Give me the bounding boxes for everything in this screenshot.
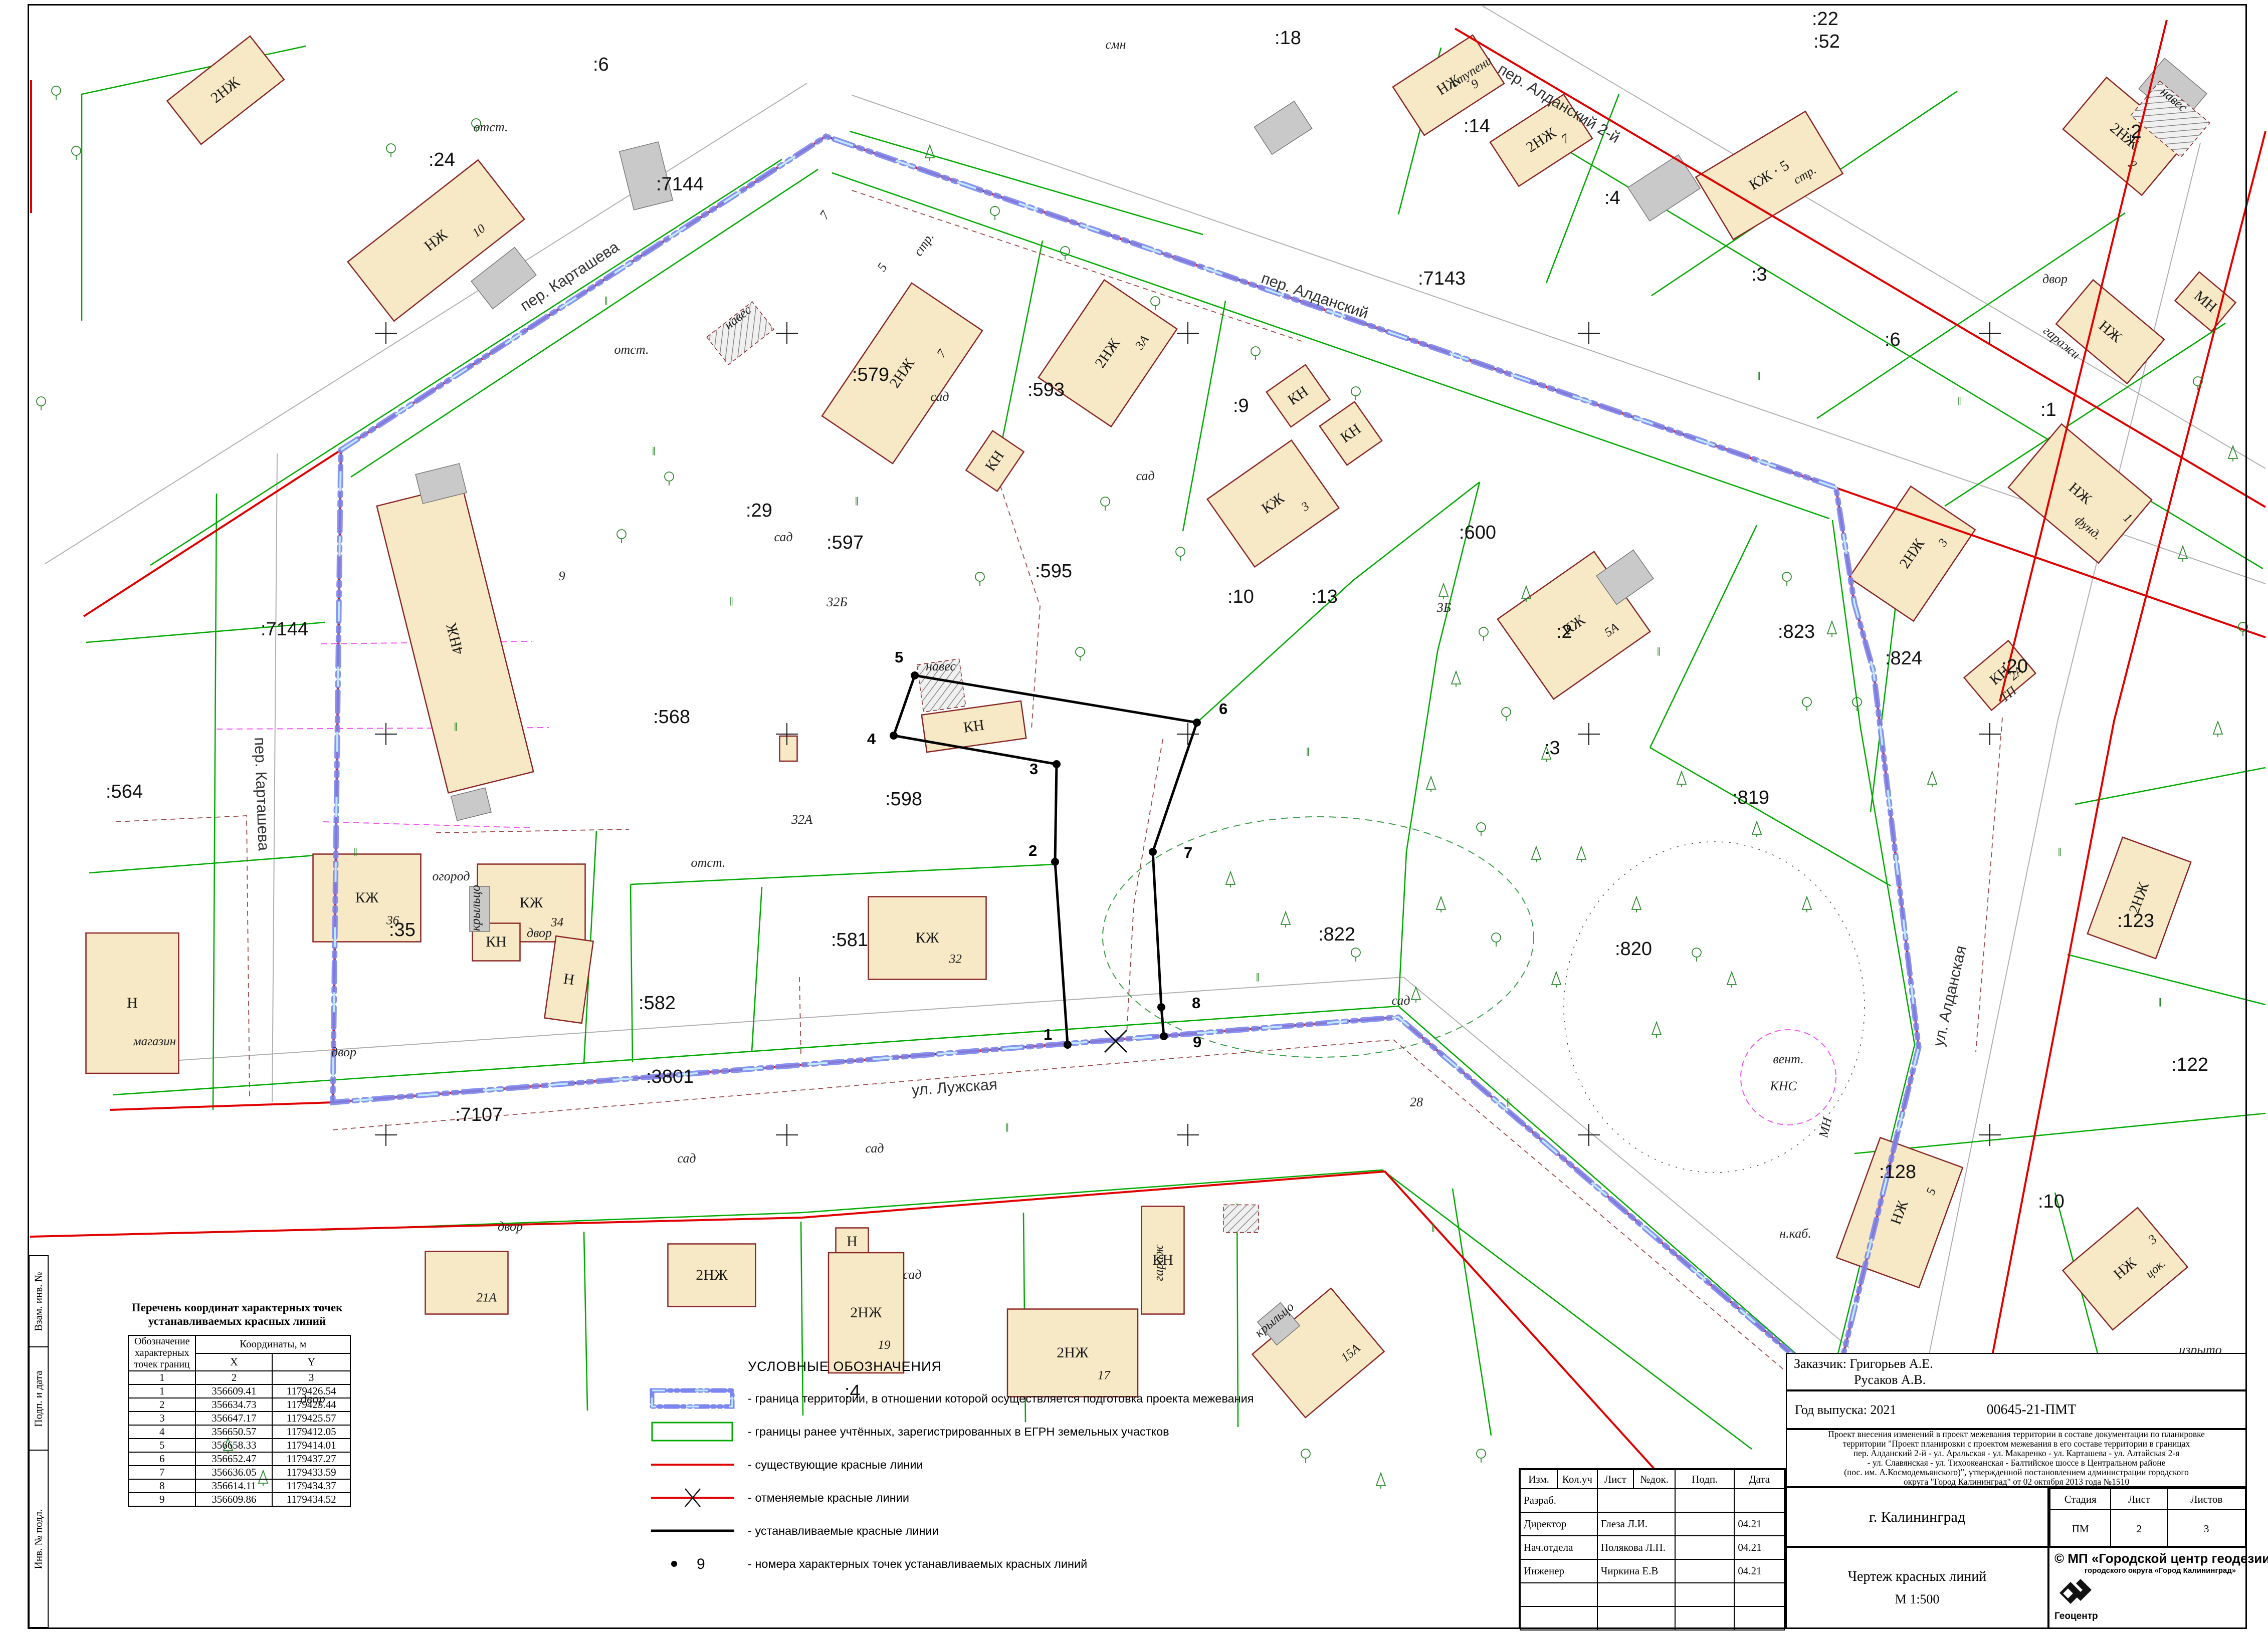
building-number: 34 [550, 916, 563, 929]
building-number: 21А [476, 1291, 497, 1305]
grid-cross [375, 322, 397, 344]
building-number: магазин [133, 1035, 176, 1048]
parcel-number-label: :52 [1813, 31, 1840, 52]
coord-row: 2356634.731179425.44 [128, 1398, 350, 1412]
legend-title: УСЛОВНЫЕ ОБОЗНАЧЕНИЯ [748, 1359, 1254, 1374]
building-number: 19 [878, 1338, 891, 1352]
legend-item-text: - границы ранее учтённых, зарегистрирова… [748, 1425, 1169, 1439]
sig-row [1520, 1606, 1784, 1630]
building: 2НЖ [167, 36, 284, 144]
building-label: КЖ [355, 889, 379, 906]
sig-cell [1734, 1489, 1784, 1512]
sig-cell: Полякова Л.П. [1597, 1536, 1676, 1559]
coord-cell: 356650.57 [195, 1425, 272, 1439]
coord-cell: 356614.11 [195, 1479, 272, 1493]
parcel-number-label: :600 [1459, 522, 1496, 543]
sig-cell [1675, 1583, 1734, 1606]
tree-icon [1477, 823, 1486, 836]
grass-mark: ∥ [1957, 396, 1962, 405]
legend-item: - граница территории, в отношении которо… [649, 1387, 1254, 1410]
coord-cell: 1179425.44 [272, 1398, 350, 1412]
legend-item: - отменяемые красные линии [649, 1487, 1254, 1509]
building: НЖ5 [1836, 1137, 1963, 1287]
sig-header-cell: Дата [1734, 1470, 1784, 1489]
conifer-tree-icon [1436, 897, 1446, 912]
conifer-tree-icon [1632, 897, 1641, 912]
sig-header-cell: Изм. [1520, 1470, 1557, 1489]
parcel-number-label: :595 [1035, 561, 1072, 582]
coord-cell: 8 [128, 1479, 195, 1493]
outbuilding-grey [451, 788, 491, 820]
characteristic-point [1064, 1041, 1072, 1049]
tree-icon [1492, 933, 1501, 947]
coord-cell: 5 [128, 1439, 195, 1452]
coord-row: 3356647.171179425.57 [128, 1412, 350, 1425]
parcel-number-label: :123 [2117, 910, 2154, 931]
building: КЖ32 [869, 897, 986, 980]
characteristic-point [890, 732, 898, 740]
map-annotation-label: сад [1136, 469, 1154, 483]
grid-cross [1979, 322, 2001, 344]
building: Нмагазин [86, 933, 179, 1073]
legend: УСЛОВНЫЕ ОБОЗНАЧЕНИЯ - граница территори… [649, 1359, 1254, 1586]
parcel-number-label: :579 [852, 364, 889, 385]
legend-symbol-blackline [649, 1520, 737, 1542]
characteristic-point [1053, 760, 1061, 768]
sig-cell [1675, 1536, 1734, 1559]
grass-mark: ∥ [1757, 371, 1761, 380]
map-annotation-label: двор [527, 925, 552, 940]
conifer-tree-icon [1727, 972, 1736, 988]
drawing-scale: М 1:500 [1848, 1592, 1986, 1607]
legend-item: 9- номера характерных точек устанавливае… [649, 1553, 1254, 1575]
grass-mark: ∥ [652, 446, 656, 455]
side-cell-inv: Инв. № подл. [29, 1450, 49, 1628]
grass-mark: ∥ [1506, 1097, 1511, 1107]
conifer-tree-icon [1802, 897, 1811, 912]
tree-icon [975, 572, 984, 586]
coord-row: 1356609.411179426.54 [128, 1384, 350, 1398]
tree-icon [1692, 948, 1701, 962]
building: 2НЖ [2088, 837, 2191, 959]
map-annotation-label: крыльцо [468, 885, 483, 931]
conifer-tree-icon [1452, 671, 1461, 687]
tree-icon [1351, 948, 1360, 962]
landuse-dashed-line [1976, 718, 2002, 1052]
tree-icon [37, 397, 46, 410]
legend-item: - границы ранее учтённых, зарегистрирова… [649, 1421, 1254, 1443]
coord-cell: 9 [128, 1493, 195, 1506]
road-centerline [1483, 6, 2265, 469]
coord-cell: 1179412.05 [272, 1425, 350, 1439]
parcel-boundary-green [1398, 482, 1480, 1006]
tree-icon [617, 530, 626, 543]
stage-value: ПМ [2050, 1510, 2111, 1548]
conifer-tree-icon [1752, 822, 1761, 837]
legend-symbol-pointnum: 9 [649, 1553, 737, 1575]
characteristic-point [911, 671, 919, 679]
parcel-number-label: :6 [593, 54, 609, 75]
sig-row: ИнженерЧиркина Е.В04.21 [1520, 1559, 1784, 1583]
coordinate-table-block: Перечень координат характерных точекуста… [128, 1301, 351, 1507]
conifer-tree-icon [1281, 912, 1290, 927]
sig-cell: Нач.отдела [1520, 1536, 1597, 1559]
conifer-tree-icon [2213, 722, 2222, 737]
sig-cell: Разраб. [1520, 1489, 1597, 1512]
sig-cell [1520, 1583, 1597, 1606]
building: НЖфунд. [2008, 424, 2152, 563]
point-number: 4 [867, 730, 876, 748]
conifer-tree-icon [1376, 1473, 1385, 1489]
map-annotation-label: 7 [816, 208, 833, 222]
sig-cell [1675, 1559, 1734, 1583]
legend-item-text: - номера характерных точек устанавливаем… [748, 1557, 1087, 1571]
sig-cell [1734, 1606, 1784, 1630]
landuse-dashed-line [1127, 739, 1163, 1033]
sig-cell: Инженер [1520, 1559, 1597, 1583]
grid-cross [1979, 1124, 2001, 1146]
coord-row: 7356636.051179433.59 [128, 1466, 350, 1479]
conifer-tree-icon [1577, 847, 1586, 862]
characteristic-point [1149, 848, 1157, 856]
coord-cell: 356647.17 [195, 1412, 272, 1425]
coord-row: 4356650.571179412.05 [128, 1425, 350, 1439]
coord-row: 5356658.331179414.01 [128, 1439, 350, 1452]
building: 2НЖ19 [829, 1253, 904, 1373]
parcel-number-label: :564 [106, 781, 143, 802]
coord-cell: 1179426.54 [272, 1384, 350, 1398]
conifer-tree-icon [1827, 621, 1836, 637]
legend-item-text: - отменяемые красные линии [748, 1491, 909, 1505]
doc-number: 00645-21-ПМТ [1986, 1402, 2076, 1418]
sig-header-cell: Кол.уч [1557, 1470, 1597, 1489]
sig-cell [1520, 1606, 1597, 1630]
building-label: КН [962, 717, 985, 736]
grass-mark: ∥ [1657, 646, 1661, 656]
building-label: КЖ [520, 894, 543, 911]
parcel-number-label: :6 [1885, 329, 1901, 350]
conifer-tree-icon [1928, 772, 1937, 787]
sig-cell: Директор [1520, 1512, 1597, 1536]
sig-cell: 04.21 [1734, 1512, 1784, 1536]
coord-cell: 1 [128, 1384, 195, 1398]
conifer-tree-icon [925, 145, 934, 161]
map-annotation-label: МН [1816, 1115, 1835, 1139]
grid-cross [1578, 723, 1600, 745]
parcel-number-label: :20 [2001, 656, 2028, 677]
map-annotation-label: вент. [1773, 1052, 1803, 1066]
coord-cell: 356636.05 [195, 1466, 272, 1479]
map-annotation-label: двор [331, 1045, 356, 1059]
legend-item: - устанавливаемые красные линии [649, 1520, 1254, 1542]
parcel-boundary-green [1453, 1189, 1491, 1436]
map-annotation-label: 32Б [826, 595, 847, 609]
parcel-number-label: :122 [2171, 1054, 2208, 1075]
sig-cell [1597, 1606, 1676, 1630]
red-line-existing [110, 1102, 333, 1110]
parcel-number-label: :7144 [261, 619, 308, 640]
map-annotation-label: двор [498, 1219, 523, 1234]
parcel-number-label: :22 [1812, 9, 1838, 30]
building: 15А [1252, 1288, 1384, 1418]
map-annotation-label: н.каб. [1779, 1226, 1811, 1241]
sheet-label: Лист [2111, 1489, 2167, 1510]
parcel-number-label: :2 [2126, 121, 2142, 142]
characteristic-point [1193, 719, 1201, 727]
tree-icon [1479, 627, 1488, 641]
building: НЖ [2056, 280, 2164, 383]
sig-cell [1675, 1512, 1734, 1536]
coord-row: 9356609.861179434.52 [128, 1493, 350, 1506]
sig-row: Разраб. [1520, 1489, 1784, 1512]
road-centerline [113, 977, 1849, 1348]
landuse-dashed-line [799, 977, 801, 1055]
building-label: КЖ [916, 929, 939, 946]
conifer-tree-icon [1426, 777, 1435, 792]
outbuilding-grey [1254, 101, 1312, 154]
parcel-boundary-green [113, 1006, 1398, 1095]
building-label: 2НЖ [850, 1304, 882, 1321]
parcel-number-label: :7143 [1418, 268, 1466, 289]
building-number: 32 [949, 953, 962, 966]
conifer-tree-icon [1652, 1022, 1661, 1038]
legend-item: - существующие красные линии [649, 1454, 1254, 1476]
street-name-label: пер. Алданский [1259, 269, 1371, 322]
parcel-number-label: :18 [1275, 28, 1301, 49]
map-annotation-label: 5 [874, 261, 890, 274]
map-annotation-label: 32А [791, 812, 812, 827]
point-number: 2 [1028, 842, 1037, 859]
sheet-value: 2 [2111, 1510, 2167, 1548]
building: Н [544, 936, 593, 1023]
col-header-x: X [195, 1353, 272, 1371]
coord-cell: 1179433.59 [272, 1466, 350, 1479]
customer-line1: Заказчик: Григорьев А.Е. [1794, 1356, 2239, 1372]
map-annotation-label: огород [433, 869, 470, 883]
parcel-boundary-green [2068, 955, 2265, 1005]
coord-cell: 3 [128, 1412, 195, 1425]
parcel-number-label: :597 [827, 532, 864, 553]
svg-text:9: 9 [697, 1556, 705, 1572]
org-name: © МП «Городской центр геодезии» [2054, 1551, 2268, 1566]
point-number: 7 [1184, 844, 1192, 861]
map-annotation-label: 28 [1410, 1095, 1423, 1109]
map-annotation-label: смн [1105, 37, 1126, 52]
numbering-cell: 2 [195, 1371, 272, 1384]
characteristic-point [1051, 858, 1059, 866]
characteristic-point [1157, 1003, 1165, 1011]
parcel-number-label: :10 [2038, 1191, 2065, 1212]
parcel-number-label: :10 [1227, 586, 1254, 607]
grass-mark: ∥ [2158, 997, 2162, 1007]
geocenter-logo-icon [2054, 1575, 2100, 1611]
sig-row: Нач.отделаПолякова Л.П.04.21 [1520, 1536, 1784, 1559]
parcel-number-label: :598 [885, 789, 922, 810]
sig-cell: Глеза Л.И. [1597, 1512, 1676, 1536]
coord-cell: 1179434.37 [272, 1479, 350, 1493]
parcel-boundary-green [1854, 1113, 2265, 1153]
grid-cross [1578, 1124, 1600, 1146]
street-name-label: пер. Карташева [251, 737, 273, 852]
building: 4НЖ [377, 485, 534, 793]
parcel-boundary-green [1650, 748, 1891, 886]
parcel-boundary-green [213, 494, 217, 1110]
grass-mark: ∥ [454, 722, 458, 731]
grass-mark: ∥ [1431, 1223, 1435, 1232]
building-label: Н [847, 1233, 858, 1250]
map-annotation-label: сад [1391, 993, 1410, 1008]
coord-row: 8356614.111179434.37 [128, 1479, 350, 1493]
coord-cell: 356658.33 [195, 1439, 272, 1452]
parcel-number-label: :7107 [455, 1104, 503, 1125]
conifer-tree-icon [1439, 584, 1448, 599]
map-annotation-label: сад [677, 1151, 696, 1165]
side-label: Инв. № подл. [33, 1509, 45, 1569]
legend-item-text: - граница территории, в отношении которо… [748, 1392, 1254, 1406]
tree-icon [1251, 347, 1260, 360]
parcel-number-label: :24 [429, 149, 455, 170]
tree-icon [386, 144, 395, 157]
building: 21А [426, 1252, 508, 1314]
parcel-number-label: :582 [639, 993, 676, 1014]
grass-mark: ∥ [855, 496, 859, 506]
coord-row: 6356652.471179437.27 [128, 1452, 350, 1466]
landuse-dashed-line [436, 829, 629, 833]
map-annotation-label: сад [865, 1141, 884, 1155]
tree-icon [1101, 497, 1110, 511]
tree-icon [1782, 572, 1791, 586]
coord-cell: 1179437.27 [272, 1452, 350, 1466]
parcel-number-label: :128 [1879, 1161, 1916, 1183]
street-name-label: ул. Лужская [911, 1075, 998, 1099]
customer-line2: Русаков А.В. [1854, 1372, 2239, 1388]
kns-zone-circle [1741, 1030, 1836, 1125]
parcel-number-label: :593 [1027, 379, 1065, 400]
grass-mark: ∥ [1306, 747, 1310, 756]
city-cell: г. Калининград [1786, 1487, 2048, 1547]
conifer-tree-icon [2228, 446, 2237, 461]
coord-cell: 1179414.01 [272, 1439, 350, 1452]
sig-cell [1734, 1583, 1784, 1606]
parcel-number-label: :13 [1311, 586, 1338, 607]
utility-line-magenta [323, 822, 530, 828]
col-header-coords: Координаты, м [195, 1335, 350, 1353]
numbering-cell: 1 [128, 1371, 195, 1384]
sig-header-cell: №док. [1633, 1470, 1675, 1489]
map-annotation-label: навес [926, 659, 956, 673]
parcel-boundary-green [1650, 525, 1757, 748]
parcel-number-label: :9 [1233, 395, 1249, 416]
map-annotation-label: 9 [559, 569, 565, 583]
grass-mark: ∥ [729, 596, 734, 606]
conifer-tree-icon [1552, 972, 1561, 988]
map-annotation-label: двор [2042, 272, 2068, 286]
building: КЖ3 [1207, 440, 1339, 567]
map-annotation-label: отст. [691, 855, 726, 870]
tree-icon [72, 146, 81, 160]
grid-cross [776, 1124, 798, 1146]
street-name-label: ул. Алданская [1930, 944, 1970, 1048]
conifer-tree-icon [1677, 772, 1686, 787]
tree-icon [1351, 387, 1360, 400]
point-number: 6 [1219, 700, 1227, 718]
grid-cross [1177, 322, 1199, 344]
sig-cell [1675, 1489, 1734, 1512]
coordinate-table: Обозначение характерных точек границ Коо… [128, 1335, 351, 1507]
point-number: 1 [1044, 1026, 1052, 1043]
tree-icon [1301, 1449, 1310, 1463]
drawing-title: Чертеж красных линий [1848, 1569, 1986, 1585]
parcel-boundary-green [1398, 1006, 1830, 1384]
tree-icon [1076, 647, 1085, 661]
org-logo-text: Геоцентр [2054, 1611, 2098, 1622]
building: НЖцок. [2063, 1208, 2187, 1330]
numbering-cell: 3 [272, 1371, 350, 1384]
side-cell-podp: Подп. и дата [29, 1346, 49, 1451]
building-label: Н [562, 971, 575, 989]
building-label: КН [486, 933, 507, 950]
tree-icon [1477, 1449, 1486, 1463]
grass-mark: ∥ [604, 296, 608, 305]
point-number: 3 [1029, 760, 1038, 778]
grid-cross [375, 1124, 397, 1146]
building: 2НЖ3А [1039, 280, 1177, 427]
tree-icon [1176, 547, 1185, 561]
parcel-boundary-green [584, 1232, 587, 1411]
parcel-number-label: :29 [746, 500, 772, 521]
outbuilding-grey [1628, 155, 1700, 221]
grass-mark: ∥ [2057, 847, 2062, 856]
parcel-boundary-green [752, 887, 762, 1051]
legend-symbol-parcel [649, 1421, 737, 1443]
grid-cross [375, 723, 397, 745]
coord-cell: 4 [128, 1425, 195, 1439]
parcel-number-label: :4 [1604, 187, 1620, 208]
shed-hatched [1223, 1205, 1259, 1233]
sheets-value: 3 [2168, 1510, 2245, 1548]
tree-icon [1502, 708, 1511, 721]
coord-cell: 356652.47 [195, 1452, 272, 1466]
sig-row: ДиректорГлеза Л.И.04.21 [1520, 1512, 1784, 1536]
point-number: 5 [895, 648, 903, 666]
legend-symbol-redx [649, 1487, 737, 1509]
conifer-tree-icon [1226, 872, 1235, 887]
sig-cell: 04.21 [1734, 1536, 1784, 1559]
building [780, 736, 797, 761]
coord-cell: 1179425.57 [272, 1412, 350, 1425]
map-annotation-label: 3Б [1436, 600, 1451, 615]
parcel-number-label: :7144 [656, 174, 704, 195]
parcel-number-label: :2 [1556, 621, 1572, 642]
legend-item-text: - существующие красные линии [748, 1458, 923, 1472]
sig-cell [1597, 1489, 1676, 1512]
col-header-points: Обозначение характерных точек границ [128, 1335, 195, 1371]
grass-mark: ∥ [353, 847, 358, 856]
building: КН [966, 431, 1023, 492]
grass-mark: ∥ [1256, 972, 1260, 982]
building: КЖ · 5стр. [1696, 111, 1842, 240]
parcel-boundary-green [850, 131, 1203, 235]
legend-symbol-redline [649, 1454, 737, 1476]
map-annotation-label: гараж [1151, 1244, 1166, 1281]
tree-icon [1151, 297, 1160, 310]
coord-cell: 356609.86 [195, 1493, 272, 1506]
building-label: Н [127, 995, 138, 1011]
grass-mark: ∥ [1005, 1122, 1009, 1132]
parcel-number-label: :14 [1464, 116, 1490, 137]
conifer-tree-icon [1532, 847, 1541, 862]
parcel-number-label: :822 [1318, 924, 1355, 945]
